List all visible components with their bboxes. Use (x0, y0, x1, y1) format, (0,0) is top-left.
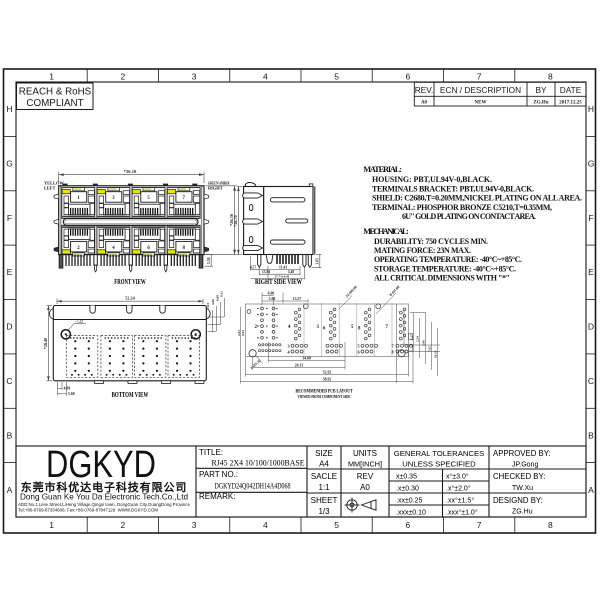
svg-text:52.92: 52.92 (323, 371, 332, 375)
svg-text:A: A (7, 485, 13, 495)
svg-text:4.09: 4.09 (64, 387, 71, 391)
svg-text:7: 7 (477, 520, 482, 530)
svg-text:*28.40: *28.40 (43, 338, 48, 350)
svg-text:HOUSING: PBT,UL94V-0,BLACK.: HOUSING: PBT,UL94V-0,BLACK. (372, 175, 492, 184)
svg-text:5.08: 5.08 (269, 297, 276, 301)
svg-text:DESIGND BY:: DESIGND BY: (493, 496, 543, 505)
svg-text:7: 7 (477, 72, 482, 82)
svg-text:1: 1 (49, 520, 54, 530)
svg-text:1:1: 1:1 (318, 483, 330, 492)
svg-text:.xxx°±1.0°: .xxx°±1.0° (446, 509, 478, 517)
svg-text:E: E (7, 267, 13, 277)
svg-text:.x±0.30: .x±0.30 (396, 486, 419, 493)
svg-text:5: 5 (334, 72, 339, 82)
svg-text:6: 6 (358, 349, 360, 354)
svg-text:52.24: 52.24 (125, 296, 135, 301)
svg-text:2.54: 2.54 (416, 336, 420, 342)
svg-text:TERMINAL: PHOSPHOR BRONZE C521: TERMINAL: PHOSPHOR BRONZE C5210,T=0.35MM… (372, 203, 552, 212)
svg-text:4.06: 4.06 (211, 299, 215, 305)
svg-text:5.50: 5.50 (207, 257, 211, 264)
svg-text:D: D (6, 322, 12, 332)
svg-text:B: B (7, 430, 13, 440)
svg-text:BOTTOM VIEW: BOTTOM VIEW (112, 391, 149, 399)
svg-text:8: 8 (548, 72, 553, 82)
svg-text:C: C (588, 376, 594, 386)
svg-text:ZG.Hu: ZG.Hu (512, 509, 533, 516)
svg-text:1.27: 1.27 (410, 334, 414, 340)
svg-text:2.03: 2.03 (206, 303, 210, 309)
svg-text:6: 6 (406, 72, 411, 82)
svg-text:G: G (6, 158, 13, 168)
svg-text:STORAGE TEMPERATURE: -40°C~+85: STORAGE TEMPERATURE: -40°C~+85°C. (374, 264, 516, 273)
svg-text:PART NO.:: PART NO.: (199, 470, 238, 479)
svg-text:A4: A4 (319, 460, 329, 469)
svg-text:VIEWED FROM COMPONENT SIDE: VIEWED FROM COMPONENT SIDE (298, 394, 351, 399)
svg-text:*26.70: *26.70 (233, 215, 238, 227)
svg-text:2: 2 (121, 520, 126, 530)
svg-text:E: E (588, 267, 594, 277)
svg-text:RIGHT SIDE VIEW: RIGHT SIDE VIEW (255, 278, 302, 286)
svg-text:8: 8 (392, 349, 394, 354)
svg-text:.x°±2.0°: .x°±2.0° (446, 485, 471, 493)
svg-text:BY: BY (535, 85, 547, 95)
svg-text:4: 4 (263, 72, 268, 82)
svg-text:REMARK:: REMARK: (199, 492, 235, 501)
svg-text:SIZE: SIZE (315, 449, 333, 458)
svg-text:8.12: 8.12 (220, 291, 224, 297)
svg-text:4: 4 (263, 520, 268, 530)
svg-text:14.00: 14.00 (302, 356, 311, 360)
svg-text:SACLE: SACLE (311, 472, 337, 481)
svg-text:1: 1 (49, 72, 54, 82)
svg-text:6: 6 (406, 520, 411, 530)
svg-text:Dong Guan Ke You Da Electronic: Dong Guan Ke You Da Electronic Tech.Co.,… (20, 493, 188, 502)
svg-text:F: F (588, 213, 593, 223)
svg-text:SHEET: SHEET (311, 496, 338, 505)
svg-text:x°±3.0°: x°±3.0° (446, 473, 469, 481)
svg-text:NEW: NEW (475, 100, 487, 105)
svg-text:ECN / DESCRIPTION: ECN / DESCRIPTION (440, 85, 521, 95)
svg-text:11.43: 11.43 (279, 266, 287, 270)
svg-text:4.57: 4.57 (250, 266, 256, 270)
svg-text:G: G (588, 158, 595, 168)
svg-text:A0: A0 (360, 483, 370, 492)
svg-text:ADD:No.1 LiHe Street,LiHeng Vi: ADD:No.1 LiHe Street,LiHeng Village,Qing… (18, 502, 190, 507)
svg-text:OPERATING TEMPERATURE: -40°C~+: OPERATING TEMPERATURE: -40°C~+85°C. (374, 255, 522, 264)
svg-text:3: 3 (192, 72, 197, 82)
svg-text:8: 8 (548, 520, 553, 530)
svg-text:MATING FORCE: 23N MAX.: MATING FORCE: 23N MAX. (374, 246, 471, 255)
svg-text:5.49: 5.49 (288, 270, 294, 274)
svg-text:DGKYD24Q042DH14A4D068: DGKYD24Q042DH14A4D068 (215, 481, 291, 490)
svg-text:*56.10: *56.10 (124, 169, 137, 174)
svg-text:UNITS: UNITS (353, 449, 377, 458)
svg-text:7.62: 7.62 (428, 346, 432, 352)
svg-text:5: 5 (358, 344, 360, 349)
svg-text:RIGHT: RIGHT (208, 186, 223, 191)
svg-text:5.08: 5.08 (422, 340, 426, 346)
svg-text:DGKYD: DGKYD (46, 444, 156, 486)
svg-text:24.13: 24.13 (295, 364, 304, 368)
svg-text:H: H (588, 104, 594, 114)
svg-text:2: 2 (121, 72, 126, 82)
svg-text:10.16: 10.16 (434, 350, 438, 358)
svg-text:1/3: 1/3 (318, 507, 330, 516)
svg-text:MECHANICAL:: MECHANICAL: (363, 227, 409, 236)
svg-text:LEFT: LEFT (44, 186, 56, 191)
svg-text:REV: REV (357, 472, 374, 481)
svg-text:MM[INCH]: MM[INCH] (348, 460, 382, 469)
svg-text:x±0.35: x±0.35 (396, 474, 417, 481)
svg-text:B: B (588, 430, 594, 440)
svg-text:7: 7 (392, 344, 394, 349)
svg-text:F: F (7, 213, 12, 223)
svg-text:-7.22: -7.22 (75, 319, 83, 323)
svg-text:H: H (6, 104, 12, 114)
svg-text:COMPLIANT: COMPLIANT (26, 98, 83, 109)
svg-text:UNLESS SPECIFIED: UNLESS SPECIFIED (402, 460, 476, 469)
svg-text:D: D (588, 322, 594, 332)
svg-text:3.05: 3.05 (316, 258, 320, 264)
svg-text:APPROVED BY:: APPROVED BY: (493, 449, 551, 458)
svg-text:Tel:+86-0769-87334606; Fax:+86: Tel:+86-0769-87334606; Fax:+86-0769-8784… (18, 508, 158, 513)
svg-text:A: A (588, 485, 594, 495)
svg-text:ALL CRITICAL DIMENSIONS WITH ": ALL CRITICAL DIMENSIONS WITH "*" (374, 274, 510, 283)
svg-text:13.94: 13.94 (262, 270, 270, 274)
svg-text:6.00: 6.00 (268, 292, 275, 296)
svg-text:DURABILITY: 750 CYCLES MIN.: DURABILITY: 750 CYCLES MIN. (374, 237, 488, 246)
svg-text:C: C (6, 376, 12, 386)
svg-text:5: 5 (334, 520, 339, 530)
svg-text:3: 3 (288, 344, 290, 349)
svg-text:ZG.Hu: ZG.Hu (533, 100, 548, 105)
svg-text:FRONT VIEW: FRONT VIEW (114, 278, 146, 286)
svg-text:RJ45 2X4 10/100/1000BASE: RJ45 2X4 10/100/1000BASE (212, 458, 305, 467)
svg-text:.xxx±0.10: .xxx±0.10 (396, 510, 426, 517)
svg-text:SHIELD: C2680,T=0.20MM,NICKEL: SHIELD: C2680,T=0.20MM,NICKEL PLATING ON… (372, 194, 582, 203)
svg-text:MATERIAL:: MATERIAL: (363, 165, 402, 174)
svg-text:TERMINALS BRACKET: PBT,UL94V-0: TERMINALS BRACKET: PBT,UL94V-0,BLACK. (372, 184, 534, 193)
svg-text:GENERAL TOLERANCES: GENERAL TOLERANCES (394, 449, 484, 458)
svg-text:CHECKED BY:: CHECKED BY: (493, 472, 545, 481)
svg-text:13.57: 13.57 (293, 297, 302, 301)
svg-text:A0: A0 (421, 100, 428, 105)
svg-text:0.64: 0.64 (241, 330, 245, 336)
svg-text:6U" GOLD PLATING ON CONTACT AR: 6U" GOLD PLATING ON CONTACT AREA. (402, 212, 536, 221)
svg-text:2017.12.25: 2017.12.25 (559, 100, 582, 105)
svg-text:REACH & RoHS: REACH & RoHS (19, 87, 92, 98)
svg-text:TW.Xu: TW.Xu (512, 485, 533, 492)
svg-text:JP.Gong: JP.Gong (512, 462, 538, 469)
svg-text:.xx±0.25: .xx±0.25 (396, 498, 423, 505)
svg-text:3: 3 (192, 520, 197, 530)
svg-text:58.92: 58.92 (323, 378, 332, 382)
svg-text:.xx°±1.5°: .xx°±1.5° (446, 497, 474, 505)
svg-text:5.60: 5.60 (68, 392, 75, 396)
svg-text:REV.: REV. (415, 85, 434, 95)
svg-text:DATE: DATE (560, 85, 582, 95)
svg-text:TITLE:: TITLE: (199, 448, 223, 457)
